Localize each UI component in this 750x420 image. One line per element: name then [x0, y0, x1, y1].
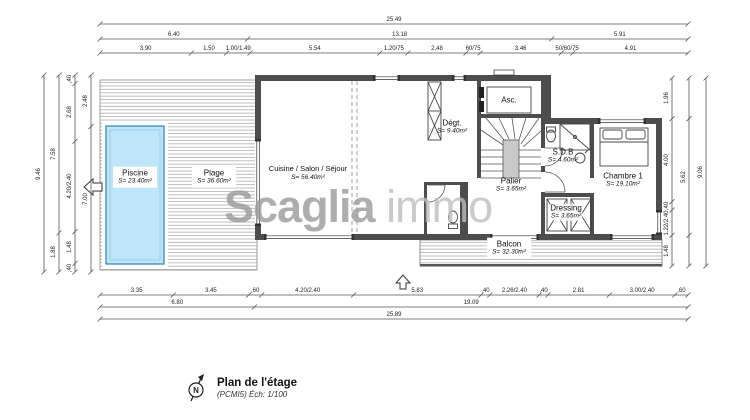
- dimension-label: 2.48: [83, 95, 89, 107]
- dimension-label: 3.00/2.40: [630, 288, 655, 294]
- room-label-asc: Asc.: [501, 95, 517, 104]
- room-area: S= 23.40m²: [118, 178, 152, 185]
- dimension-label: 1.48: [67, 242, 73, 254]
- dimension-label: ,40: [67, 75, 73, 83]
- dimension-label: 1.96: [664, 92, 670, 104]
- dimension-label: ,40: [664, 202, 670, 210]
- room-name: Dressing: [550, 204, 582, 213]
- room-area: S= 19.10m²: [603, 181, 643, 188]
- dimension-label: 1.00/1.49: [226, 46, 251, 52]
- dimension-label: 6.40: [168, 32, 180, 38]
- room-name: Plage: [197, 169, 231, 178]
- legend-scale: (PCMI5) Éch: 1/100: [217, 390, 297, 399]
- dimension-label: 7.58: [51, 148, 57, 160]
- room-name: Chambre 1: [603, 172, 643, 181]
- dimension-label: 9.46: [36, 168, 42, 180]
- dimension-label: 2.48: [431, 46, 443, 52]
- dimension-label: 3.90: [140, 46, 152, 52]
- room-label-plage: Plage S= 36.60m²: [192, 167, 236, 188]
- dimension-label: 3.35: [131, 288, 143, 294]
- room-label-palier: Palier S= 3.65m²: [496, 177, 526, 194]
- dimension-label: 5.83: [411, 288, 423, 294]
- room-name: Asc.: [501, 95, 517, 104]
- dimension-label: 60/75: [466, 46, 481, 52]
- floor-plan-drawing: N: [0, 0, 750, 420]
- balcony-edge: [420, 264, 662, 267]
- dimension-label: 1.22/2.40: [664, 210, 670, 235]
- entry-arrow-up-icon: [396, 275, 410, 289]
- dimension-label: ,40: [481, 288, 489, 294]
- room-label-chambre1: Chambre 1 S= 19.10m²: [603, 172, 643, 189]
- room-label-cuisine: Cuisine / Salon / Séjour S= 56.40m²: [269, 165, 347, 181]
- dimension-label: ,40: [539, 288, 547, 294]
- room-area: S= 3.65m²: [496, 186, 526, 193]
- dimension-label: 19.09: [464, 300, 479, 306]
- dimension-label: 3.45: [205, 288, 217, 294]
- room-area: S= 32.30m²: [492, 249, 526, 256]
- balcony-deck: [420, 240, 662, 266]
- room-name: S.D.B: [548, 148, 578, 157]
- room-area: S= 56.40m²: [269, 174, 347, 181]
- room-name: Cuisine / Salon / Séjour: [269, 165, 347, 174]
- dimension-label: 9.06: [698, 166, 704, 178]
- dimension-label: 4.00: [664, 154, 670, 166]
- dimension-label: 1.20/75: [384, 46, 404, 52]
- dimension-label: 5.91: [614, 32, 626, 38]
- dimension-label: 4.20/2.40: [67, 174, 73, 199]
- room-label-balcon: Balcon S= 32.30m²: [487, 238, 531, 259]
- dimension-label: 4.20/2.40: [295, 288, 320, 294]
- dimension-label: 1.48: [664, 245, 670, 257]
- dimension-label: 3.46: [515, 46, 527, 52]
- dimension-label: 1.88: [51, 247, 57, 259]
- balcony: [420, 240, 662, 267]
- dimension-label: 6.80: [171, 300, 183, 306]
- room-name: Balcon: [492, 240, 526, 249]
- room-name: Piscine: [118, 169, 152, 178]
- room-label-sdb: S.D.B S= 4.60m²: [548, 148, 578, 165]
- legend-title: Plan de l'étage: [217, 377, 297, 389]
- dimension-label: ,40: [67, 264, 73, 272]
- legend: Plan de l'étage (PCMI5) Éch: 1/100: [184, 371, 297, 405]
- dimension-label: 13.18: [392, 32, 407, 38]
- dimension-label: 4.91: [625, 46, 637, 52]
- dimension-label: ,60: [677, 288, 685, 294]
- pool: [106, 126, 164, 264]
- dimension-label: 50/60/75: [555, 46, 578, 52]
- elevator-door-icon: [479, 87, 484, 98]
- dimension-label: 25.89: [386, 312, 401, 318]
- room-area: S= 36.60m²: [197, 178, 231, 185]
- dimension-label: 25.49: [386, 17, 401, 23]
- room-label-piscine: Piscine S= 23.40m²: [113, 167, 157, 188]
- dimension-label: 5.54: [309, 46, 321, 52]
- floor-plan: N Scaglia immo Piscine S= 23.40m² Plage …: [0, 0, 750, 420]
- room-label-dressing: Dressing S= 3.65m²: [550, 204, 582, 221]
- dimension-label: ,60: [251, 288, 259, 294]
- dimension-label: 2.68: [67, 107, 73, 119]
- dimension-label: 1.50: [203, 46, 215, 52]
- dimension-label: 2.81: [573, 288, 585, 294]
- staircase-icon: [481, 118, 541, 178]
- room-name: Palier: [496, 177, 526, 186]
- room-area: S= 9.40m²: [437, 128, 467, 135]
- room-area: S= 3.65m²: [550, 213, 582, 220]
- north-arrow-spacer: [184, 371, 208, 405]
- dimension-label: 2.26/2.40: [502, 288, 527, 294]
- room-name: Dégt.: [437, 119, 467, 128]
- dimension-label: 7.00: [83, 193, 89, 205]
- room-area: S= 4.60m²: [548, 157, 578, 164]
- dimension-label: 5.62: [681, 171, 687, 183]
- room-label-degt: Dégt. S= 9.40m²: [437, 119, 467, 136]
